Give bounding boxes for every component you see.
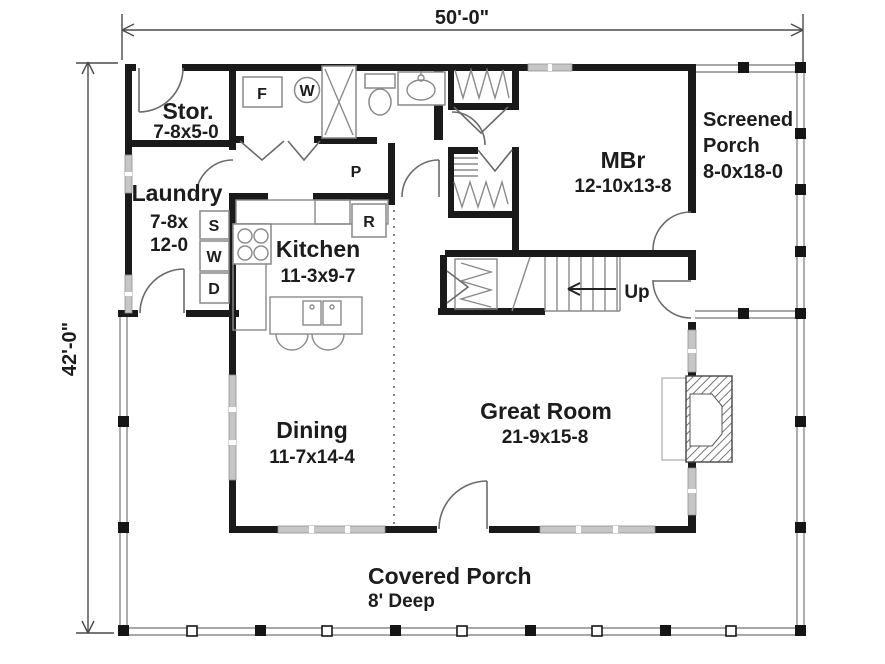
- utility-closet-bifold: [288, 141, 320, 160]
- pantry-label: P: [351, 164, 362, 181]
- hall-porch-door-swing: [653, 280, 691, 318]
- water-heater-label: W: [299, 83, 315, 100]
- great-room-size: 21-9x15-8: [502, 427, 589, 448]
- fireplace: [662, 376, 732, 462]
- floor-plan-drawing: 50'-0" 42'-0": [0, 0, 885, 664]
- laundry-sink-label: S: [209, 218, 220, 235]
- washer-label: W: [206, 249, 222, 266]
- mbr-size: 12-10x13-8: [574, 176, 671, 197]
- dryer-label: D: [208, 281, 220, 298]
- floor-plan: 50'-0" 42'-0": [0, 0, 885, 664]
- laundry-exterior-door-swing: [140, 269, 184, 313]
- toilet-bowl: [369, 89, 391, 115]
- stor-size: 7-8x5-0: [153, 122, 219, 143]
- great-room-label: Great Room: [480, 398, 612, 424]
- covered-porch-label: Covered Porch: [368, 563, 532, 589]
- mbr-label: MBr: [601, 147, 646, 173]
- width-dimension-label: 50'-0": [435, 7, 489, 29]
- mid-closet-bifold: [478, 150, 512, 171]
- bath-door-swing: [402, 160, 439, 197]
- bar-stool: [312, 334, 344, 350]
- front-door-swing: [439, 481, 487, 529]
- freezer-label: F: [257, 86, 267, 103]
- kitchen-island: [270, 297, 362, 334]
- hearth: [662, 378, 688, 460]
- screened-porch-label-1: Screened: [703, 109, 793, 131]
- bar-stool: [276, 334, 308, 350]
- firebox: [690, 394, 722, 446]
- laundry-size-1: 7-8x: [150, 212, 188, 233]
- kitchen-label: Kitchen: [276, 236, 360, 262]
- laundry-size-2: 12-0: [150, 235, 188, 256]
- dining-size: 11-7x14-4: [269, 447, 355, 468]
- stair-closet: [455, 259, 497, 309]
- depth-dimension-label: 42'-0": [59, 322, 81, 376]
- closet-rod: [455, 70, 509, 98]
- dining-label: Dining: [276, 417, 348, 443]
- screened-porch-size: 8-0x18-0: [703, 161, 783, 183]
- mbr-door-swing: [452, 112, 485, 145]
- stor-label: Stor.: [162, 98, 213, 124]
- bath-fixtures: [243, 66, 445, 138]
- kitchen-size: 11-3x9-7: [280, 266, 355, 287]
- closet-rod: [454, 182, 508, 207]
- laundry-label: Laundry: [132, 180, 223, 206]
- screened-porch-label-2: Porch: [703, 135, 760, 157]
- mbr-porch-door-swing: [653, 212, 691, 250]
- toilet-tank: [365, 74, 395, 88]
- covered-porch-size: 8' Deep: [368, 591, 435, 612]
- stairs-up-label: Up: [624, 282, 649, 303]
- utility-closet-bifold: [240, 141, 284, 160]
- refrigerator-label: R: [363, 214, 375, 231]
- stairs: [512, 257, 620, 311]
